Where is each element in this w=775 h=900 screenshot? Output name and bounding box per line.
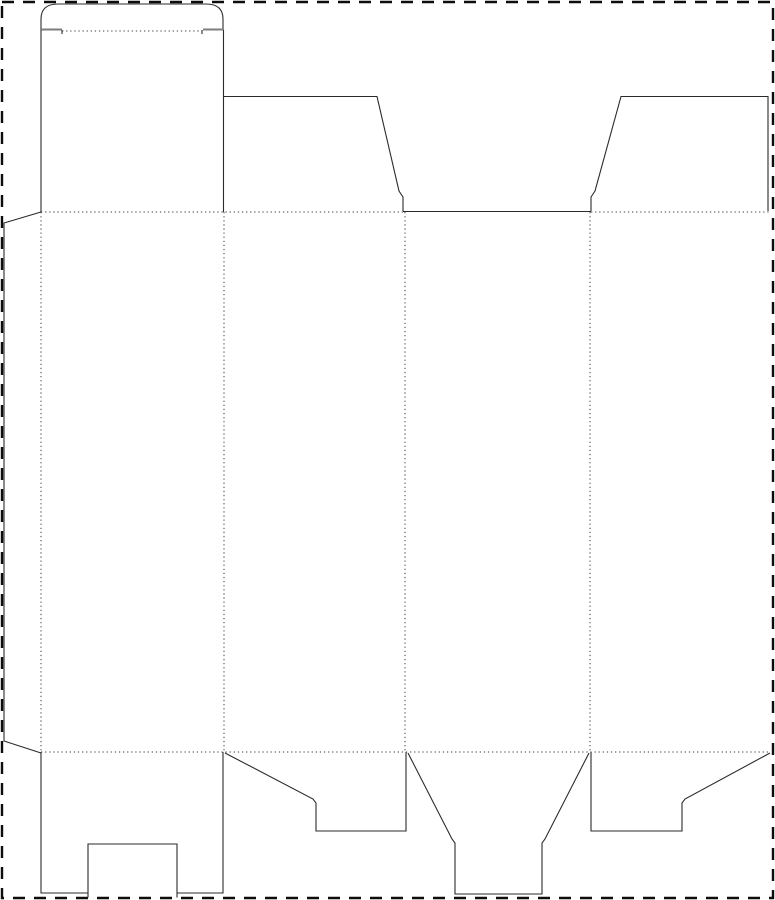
bottom-flap1-right-side bbox=[177, 752, 223, 893]
bottom-flap3-funnel bbox=[408, 753, 589, 894]
dieline-canvas bbox=[0, 0, 775, 900]
top-dust-flap-right bbox=[591, 97, 768, 212]
bottom-flap1-left-side bbox=[41, 752, 88, 893]
dieline-sheet bbox=[0, 0, 775, 900]
sheet-border bbox=[2, 2, 773, 898]
fold-lines bbox=[41, 31, 770, 752]
sheet-border-dashed bbox=[2, 2, 773, 898]
bottom-flap4-outline bbox=[591, 752, 770, 831]
glue-flap-outline bbox=[4, 212, 41, 753]
top-dust-flap-left bbox=[224, 97, 403, 212]
tuck-flap-crown bbox=[41, 4, 223, 30]
bottom-flap2-outline bbox=[225, 752, 406, 831]
cut-lines bbox=[4, 4, 770, 898]
bottom-flap1-lock-notch bbox=[88, 844, 177, 898]
